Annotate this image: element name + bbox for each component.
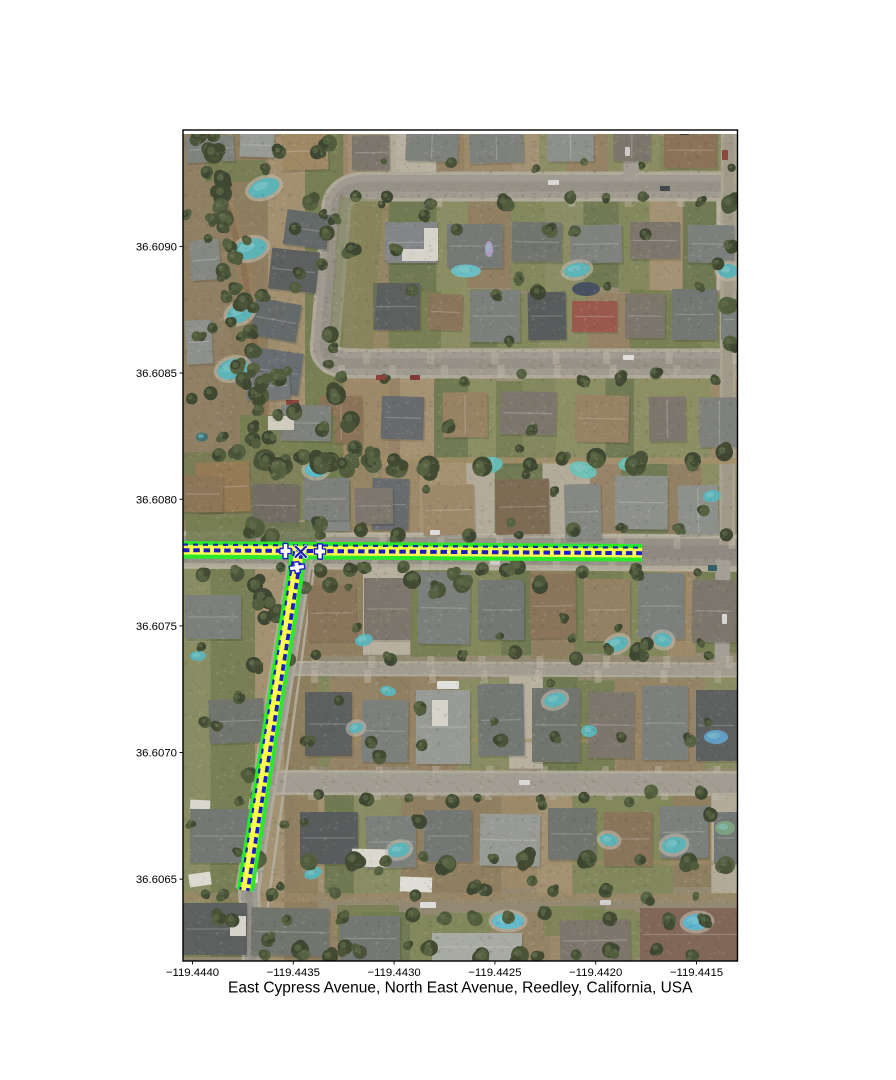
- svg-text:−119.4420: −119.4420: [569, 967, 622, 979]
- svg-text:36.6080: 36.6080: [136, 494, 177, 506]
- svg-text:36.6085: 36.6085: [136, 368, 177, 380]
- svg-text:−119.4435: −119.4435: [267, 967, 320, 979]
- svg-text:East Cypress Avenue, North Eas: East Cypress Avenue, North East Avenue, …: [228, 980, 693, 997]
- svg-text:36.6090: 36.6090: [136, 242, 177, 254]
- svg-text:−119.4415: −119.4415: [670, 967, 723, 979]
- svg-text:36.6065: 36.6065: [136, 874, 177, 886]
- svg-text:−119.4440: −119.4440: [166, 967, 219, 979]
- svg-text:36.6075: 36.6075: [136, 621, 177, 633]
- svg-text:36.6070: 36.6070: [136, 748, 177, 760]
- svg-text:−119.4430: −119.4430: [367, 967, 420, 979]
- svg-text:−119.4425: −119.4425: [468, 967, 521, 979]
